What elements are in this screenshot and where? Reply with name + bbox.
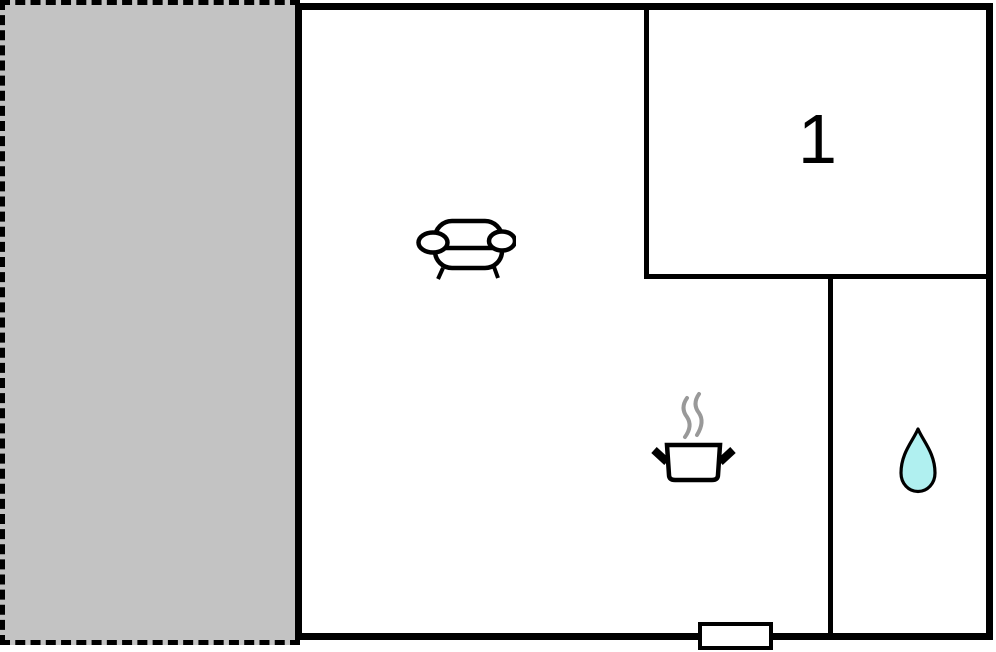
sofa-icon [414, 214, 516, 280]
room1-bottom-wall [644, 274, 986, 279]
entrance-door-marker [698, 622, 773, 650]
water-drop-icon [898, 426, 938, 496]
cooking-pot-icon [648, 388, 738, 488]
room1-label: 1 [649, 10, 986, 268]
floor-plan: 1 [0, 0, 996, 652]
bathroom-wall [828, 279, 833, 633]
terrace-area [0, 0, 300, 645]
